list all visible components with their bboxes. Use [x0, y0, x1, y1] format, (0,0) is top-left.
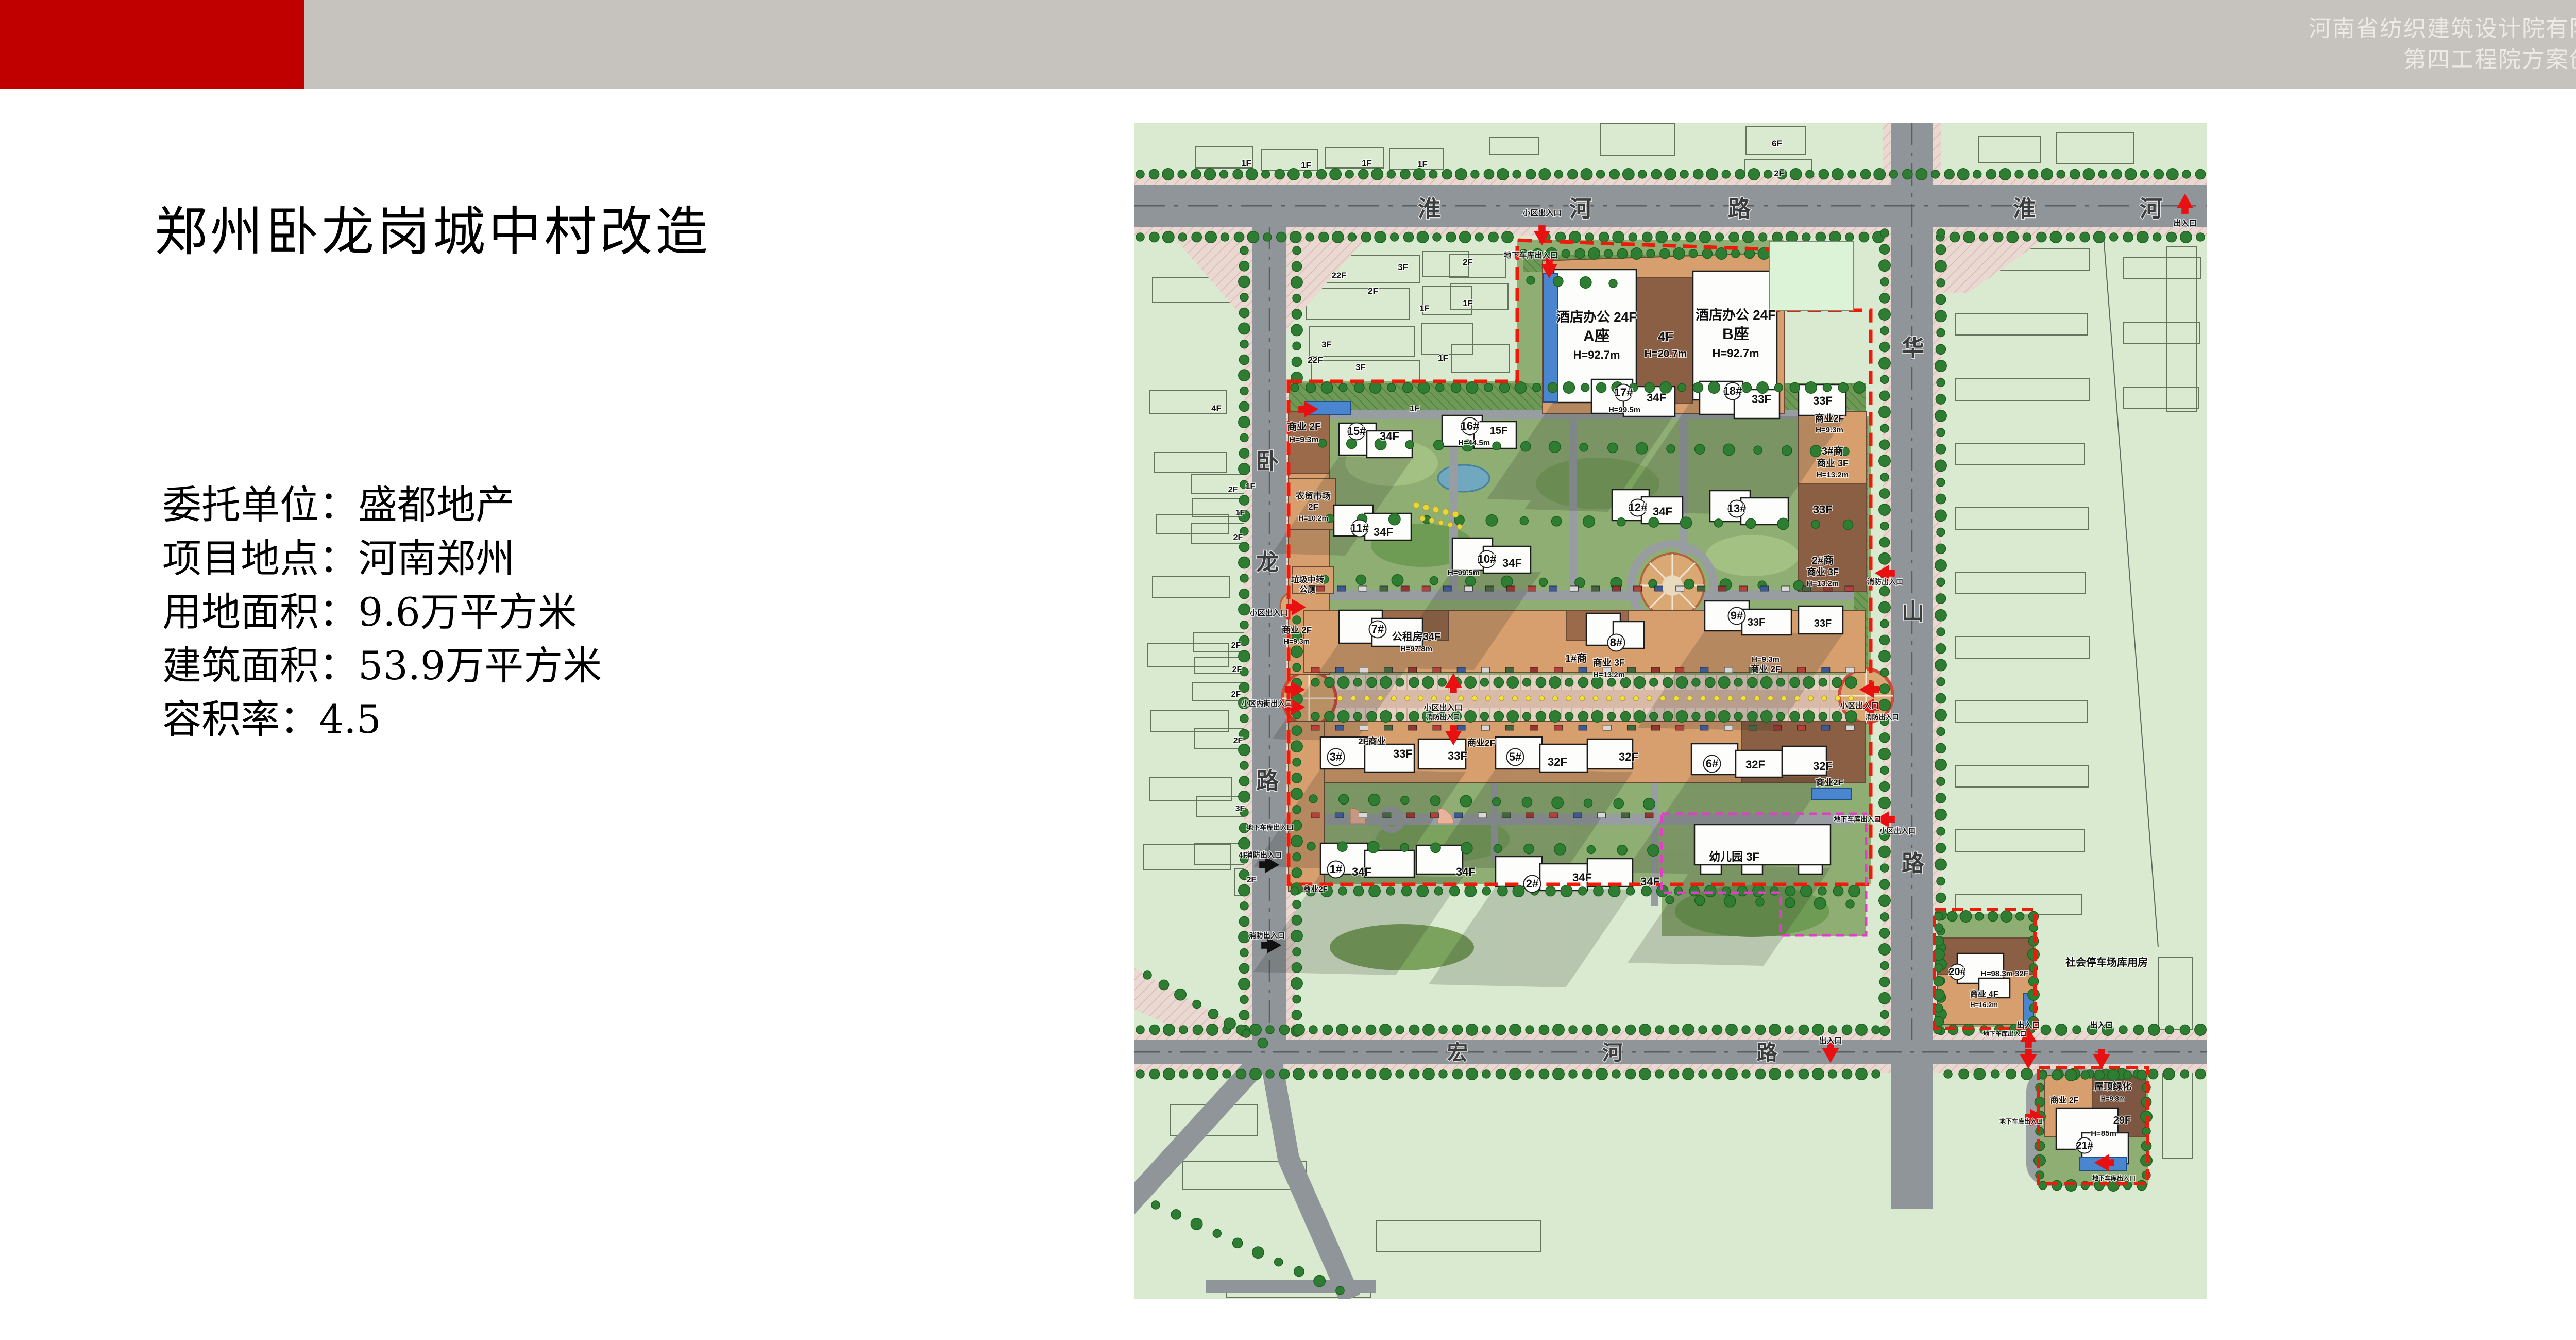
tree-icon	[1879, 601, 1890, 613]
tree-icon	[2050, 231, 2061, 243]
plan-label: 商业 3F	[1807, 566, 1839, 577]
tree-icon	[1539, 578, 1548, 587]
tree-icon	[1442, 169, 1452, 179]
tree-icon	[1293, 995, 1301, 1003]
tree-icon	[1936, 743, 1945, 753]
plan-label: 33F	[1813, 394, 1833, 407]
tree-icon	[1719, 677, 1730, 688]
header-band: 河南省纺织建筑设计院有限公司 第四工程院方案创作所	[0, 0, 2576, 89]
tree-icon	[1716, 233, 1724, 241]
tree-icon	[1772, 232, 1782, 242]
tree-icon	[1790, 169, 1802, 180]
tree-icon	[1486, 515, 1497, 526]
tree-icon	[1785, 1070, 1793, 1078]
tree-icon	[1240, 340, 1248, 348]
plan-label: 33F	[1814, 618, 1832, 629]
plan-label: 1F	[1410, 404, 1420, 413]
tree-icon	[1936, 394, 1945, 404]
tree-icon	[2167, 169, 2178, 180]
tree-icon	[1599, 232, 1609, 242]
tree-icon	[1303, 170, 1312, 178]
company-name: 河南省纺织建筑设计院有限公司	[2309, 13, 2576, 44]
tree-icon	[1578, 677, 1588, 687]
tree-icon	[2065, 1069, 2077, 1081]
tree-icon	[1581, 383, 1589, 392]
tree-icon	[1239, 604, 1250, 615]
tree-icon	[1136, 233, 1144, 241]
tree-icon	[1802, 233, 1810, 241]
plan-label: 龙	[1256, 550, 1279, 575]
tree-icon	[1239, 837, 1250, 849]
tree-icon	[1856, 1024, 1867, 1035]
car-icon	[1530, 667, 1538, 673]
plan-label: 2F	[1231, 641, 1241, 650]
tree-icon	[1207, 1024, 1218, 1035]
tree-icon	[1596, 1068, 1607, 1080]
tree-icon	[1655, 1026, 1664, 1034]
tree-icon	[1702, 248, 1712, 258]
tree-icon	[1339, 794, 1349, 804]
tree-icon	[1330, 169, 1341, 180]
tree-icon	[1266, 1070, 1274, 1078]
plan-label: 3F	[1398, 262, 1408, 272]
tree-icon	[1380, 677, 1392, 688]
tree-icon	[1465, 711, 1476, 722]
tree-icon	[1676, 711, 1687, 722]
tree-icon	[1636, 443, 1648, 454]
plan-label: H=97.8m	[1400, 645, 1432, 654]
tree-icon	[1916, 169, 1927, 180]
light-dot-icon	[1413, 502, 1419, 508]
plan-label: 路	[1902, 851, 1925, 876]
tree-icon	[1240, 949, 1248, 957]
tree-icon	[1482, 1026, 1490, 1034]
tree-icon	[1732, 249, 1740, 258]
light-dot-icon	[1553, 696, 1558, 701]
tree-icon	[1500, 382, 1510, 392]
tree-icon	[1498, 886, 1507, 896]
tree-icon	[1233, 1238, 1243, 1248]
plan-label: 34F	[1374, 526, 1393, 539]
tree-icon	[1793, 580, 1803, 590]
tree-icon	[1520, 517, 1528, 525]
tree-icon	[1460, 795, 1471, 807]
tree-icon	[1815, 898, 1826, 909]
tree-icon	[1937, 528, 1945, 537]
tree-icon	[1163, 231, 1174, 243]
tree-icon	[1832, 677, 1842, 687]
tree-icon	[1937, 229, 1945, 237]
tree-icon	[1936, 494, 1945, 504]
tree-icon	[1861, 169, 1871, 179]
plan-label: 34F	[1380, 430, 1399, 443]
plan-label: 2F	[1774, 169, 1784, 178]
tree-icon	[1293, 806, 1301, 814]
car-icon	[1782, 586, 1790, 591]
tree-icon	[1466, 576, 1476, 586]
plan-label: 1F	[1463, 298, 1473, 308]
tree-icon	[1879, 358, 1890, 369]
tree-icon	[1409, 677, 1419, 687]
tree-icon	[1345, 170, 1353, 178]
tree-icon	[1880, 913, 1889, 921]
tree-icon	[1539, 169, 1550, 180]
plan-label: 2#商	[1812, 554, 1834, 566]
tree-icon	[1879, 1026, 1889, 1035]
tree-icon	[1612, 1070, 1620, 1078]
plan-label: 15F	[1490, 425, 1507, 437]
plan-label: 8#	[1610, 636, 1622, 649]
tree-icon	[1935, 310, 1946, 322]
tree-icon	[1513, 170, 1521, 178]
tree-icon	[1935, 410, 1946, 422]
light-dot-icon	[1580, 696, 1585, 701]
tree-icon	[1536, 677, 1546, 687]
tree-icon	[1369, 382, 1381, 393]
car-icon	[1655, 586, 1663, 591]
car-icon	[1360, 667, 1368, 673]
tree-icon	[1746, 518, 1756, 528]
tree-icon	[1879, 489, 1889, 498]
tree-icon	[1960, 911, 1971, 922]
tree-icon	[1439, 1026, 1447, 1034]
tree-icon	[1417, 231, 1428, 243]
tree-icon	[1533, 383, 1541, 392]
plan-label: 15#	[1347, 425, 1366, 438]
light-dot-icon	[1512, 696, 1517, 701]
tree-icon	[1240, 761, 1248, 769]
tree-icon	[2110, 233, 2118, 241]
tree-icon	[1223, 1070, 1231, 1078]
plan-label: 商业2F	[1816, 777, 1843, 788]
car-icon	[1528, 586, 1536, 591]
tree-icon	[1507, 677, 1518, 688]
tree-icon	[1936, 344, 1945, 354]
tree-icon	[2056, 1024, 2067, 1035]
tree-icon	[1553, 1068, 1564, 1080]
car-icon	[1634, 586, 1642, 591]
plan-label: 32F	[1745, 758, 1765, 771]
tree-icon	[1638, 170, 1647, 178]
tree-icon	[1307, 842, 1315, 850]
tree-icon	[1466, 382, 1478, 393]
tree-icon	[1937, 378, 1945, 387]
tree-icon	[1338, 711, 1349, 722]
tree-icon	[1879, 846, 1890, 857]
tree-icon	[1597, 170, 1605, 178]
tree-icon	[1266, 1026, 1274, 1034]
plan-label: H=99.5m	[1608, 406, 1640, 414]
tree-icon	[1239, 1010, 1249, 1020]
light-dot-icon	[1808, 696, 1814, 701]
plan-label: 商业 2F	[2050, 1095, 2078, 1105]
tree-icon	[1354, 886, 1364, 896]
light-dot-icon	[1432, 696, 1437, 701]
tree-icon	[1959, 1069, 1969, 1079]
tree-icon	[2182, 170, 2191, 178]
plan-label: 20#	[1948, 966, 1965, 978]
plan-label: 32F	[1548, 756, 1567, 768]
tree-icon	[1501, 576, 1513, 587]
tree-icon	[1536, 711, 1546, 721]
plan-label: H=99.5m	[1448, 568, 1480, 577]
tree-icon	[1239, 401, 1249, 411]
tree-icon	[1845, 233, 1854, 241]
tree-icon	[2165, 1026, 2174, 1034]
tree-icon	[1338, 677, 1349, 688]
tree-icon	[1292, 726, 1301, 735]
car-icon	[1554, 667, 1563, 673]
car-icon	[1676, 586, 1684, 591]
plan-label: 10#	[1478, 552, 1497, 565]
car-icon	[1485, 586, 1494, 591]
tree-icon	[1336, 1286, 1344, 1295]
tree-icon	[2066, 233, 2075, 241]
tree-icon	[1790, 677, 1800, 687]
tree-icon	[1623, 169, 1634, 180]
tree-icon	[1291, 887, 1299, 895]
tree-icon	[1409, 711, 1419, 721]
tree-icon	[2073, 1026, 2081, 1034]
tree-icon	[2154, 169, 2163, 179]
plan-label: H=13.2m	[1807, 579, 1839, 588]
tree-icon	[1293, 616, 1301, 624]
tree-icon	[1475, 233, 1483, 241]
car-icon	[1579, 667, 1587, 673]
tree-icon	[1149, 169, 1159, 179]
tree-icon	[1936, 294, 1945, 304]
site-plan-svg: 淮河路淮河卧龙路华山路宏河路酒店办公 24FA座H=92.7m4FH=20.7m…	[1134, 123, 2207, 1299]
car-icon	[1502, 813, 1510, 818]
tree-icon	[1755, 1069, 1765, 1079]
tree-icon	[1931, 170, 1940, 178]
tree-icon	[1246, 169, 1257, 180]
tree-icon	[1991, 1070, 1999, 1078]
tree-icon	[1879, 977, 1889, 987]
tree-icon	[2094, 1070, 2104, 1080]
light-dot-icon	[1337, 696, 1343, 701]
light-dot-icon	[1727, 696, 1733, 701]
tree-icon	[1239, 557, 1250, 568]
tree-icon	[1367, 711, 1377, 721]
info-line-far: 容积率：4.5	[162, 693, 602, 746]
tree-icon	[1805, 382, 1817, 393]
tree-icon	[1524, 844, 1534, 854]
tree-icon	[1588, 248, 1600, 259]
plan-label: 消防出入口	[1426, 713, 1460, 721]
tree-icon	[1353, 712, 1362, 721]
light-dot-icon	[1364, 696, 1369, 701]
plan-label: 商业 2F	[1287, 421, 1320, 432]
tree-icon	[1306, 233, 1314, 241]
tree-icon	[1963, 231, 1975, 243]
tree-icon	[1291, 324, 1302, 336]
tree-icon	[1935, 709, 1946, 721]
tree-icon	[1175, 989, 1186, 1000]
tree-icon	[1239, 463, 1250, 475]
tree-icon	[1178, 170, 1186, 178]
tree-icon	[1879, 440, 1889, 449]
tree-icon	[1880, 668, 1889, 677]
tree-icon	[1242, 1029, 1250, 1037]
tree-icon	[2195, 1024, 2206, 1035]
car-icon	[1359, 586, 1367, 591]
car-icon	[1549, 586, 1557, 591]
tree-icon	[1239, 542, 1249, 552]
tree-icon	[1650, 712, 1658, 721]
tree-icon	[1596, 382, 1606, 392]
tree-icon	[1319, 232, 1329, 242]
car-icon	[1409, 667, 1417, 673]
car-icon	[1335, 813, 1343, 818]
plan-label: 农贸市场	[1295, 491, 1331, 501]
tree-icon	[1801, 885, 1812, 897]
tree-icon	[1669, 1069, 1679, 1079]
tree-icon	[1484, 169, 1494, 179]
tree-icon	[1371, 169, 1383, 180]
tree-icon	[1389, 513, 1400, 525]
tree-icon	[1683, 1068, 1694, 1080]
tree-icon	[1387, 170, 1395, 178]
tree-icon	[1755, 1025, 1765, 1034]
tree-icon	[1935, 460, 1946, 471]
car-icon	[1454, 813, 1463, 818]
plan-label: 2F	[1247, 876, 1257, 884]
car-icon	[1359, 813, 1367, 818]
tree-icon	[1819, 169, 1828, 179]
tree-icon	[1769, 1024, 1781, 1035]
tree-icon	[1239, 963, 1249, 973]
tree-icon	[1391, 233, 1399, 241]
tree-icon	[1400, 169, 1410, 179]
tree-icon	[1723, 444, 1735, 455]
tree-icon	[1204, 169, 1215, 180]
tree-icon	[2123, 232, 2133, 242]
light-dot-icon	[1526, 696, 1531, 701]
tree-icon	[1678, 383, 1686, 392]
tree-icon	[1539, 1025, 1549, 1034]
tree-icon	[1726, 1024, 1737, 1035]
car-icon	[1337, 586, 1346, 591]
tree-icon	[1434, 440, 1444, 450]
tree-icon	[2180, 231, 2192, 243]
plan-label: 商业2F	[1815, 413, 1844, 424]
car-icon	[1409, 725, 1417, 730]
tree-icon	[1699, 231, 1710, 243]
plan-label: 路	[1757, 1042, 1778, 1064]
tree-icon	[1288, 169, 1299, 180]
car-icon	[1478, 813, 1486, 818]
plan-label: H=98.3m 32F	[1981, 969, 2028, 978]
car-icon	[1335, 725, 1344, 730]
tree-icon	[1239, 495, 1249, 505]
car-icon	[1845, 586, 1853, 591]
tree-icon	[1136, 1070, 1144, 1078]
plan-label: 屋顶绿化	[2094, 1081, 2131, 1092]
tree-icon	[1764, 170, 1772, 178]
tree-icon	[1396, 1026, 1404, 1034]
tree-icon	[1596, 1024, 1607, 1035]
tree-icon	[1973, 170, 1981, 178]
tree-icon	[1460, 231, 1471, 243]
tree-icon	[1240, 387, 1248, 395]
tree-icon	[1436, 383, 1444, 392]
tree-icon	[1828, 1026, 1837, 1034]
car-icon	[1724, 725, 1733, 730]
tree-icon	[1634, 711, 1645, 722]
tree-icon	[1879, 538, 1889, 547]
plan-label: 13#	[1727, 502, 1747, 515]
plan-label: 商业 3F	[1593, 657, 1625, 668]
car-icon	[1311, 725, 1319, 730]
car-icon	[1724, 667, 1733, 673]
tree-icon	[1258, 1038, 1267, 1048]
tree-icon	[1291, 835, 1302, 847]
tree-icon	[1712, 1069, 1722, 1079]
project-info: 委托单位：盛都地产 项目地点：河南郑州 用地面积：9.6万平方米 建筑面积：53…	[162, 478, 602, 746]
plan-label: 2F	[1368, 286, 1378, 296]
tree-icon	[1494, 711, 1503, 721]
tree-icon	[1854, 382, 1865, 393]
tree-icon	[1292, 1010, 1301, 1020]
plan-label: 河	[2140, 196, 2162, 222]
tree-icon	[1663, 711, 1673, 721]
light-dot-icon	[1674, 696, 1679, 701]
tree-icon	[1903, 169, 1912, 179]
tree-icon	[1380, 711, 1392, 722]
tree-icon	[2108, 1069, 2119, 1081]
plan-label: H=92.7m	[1573, 348, 1620, 361]
car-icon	[1550, 813, 1558, 818]
tree-icon	[1403, 232, 1413, 242]
tree-icon	[1493, 442, 1501, 450]
tree-icon	[1833, 886, 1843, 896]
tree-icon	[2133, 1025, 2143, 1034]
car-icon	[1627, 667, 1635, 673]
tree-icon	[1776, 678, 1785, 686]
tree-icon	[1812, 1024, 1824, 1035]
tree-icon	[1240, 995, 1248, 1003]
plan-label: 2F	[1463, 257, 1473, 267]
tree-icon	[1178, 233, 1187, 241]
tree-icon	[1279, 1025, 1289, 1034]
tree-icon	[1405, 441, 1414, 449]
tree-icon	[1663, 677, 1673, 687]
tree-icon	[1179, 1070, 1188, 1078]
tree-icon	[1291, 383, 1299, 392]
plan-label: 3F	[1321, 340, 1332, 349]
tree-icon	[1193, 1025, 1202, 1034]
car-icon	[1481, 667, 1489, 673]
tree-icon	[1403, 382, 1413, 392]
tree-icon	[1356, 575, 1366, 584]
tree-icon	[1828, 1070, 1837, 1078]
tree-icon	[1936, 245, 1945, 255]
tree-icon	[1585, 233, 1594, 241]
tree-icon	[1291, 788, 1302, 799]
plan-label: 6#	[1706, 757, 1718, 770]
tree-icon	[1692, 678, 1700, 686]
tree-icon	[1353, 678, 1362, 686]
plan-label: 12#	[1629, 501, 1648, 514]
reserved-lot	[1770, 241, 1853, 310]
tree-icon	[1604, 249, 1613, 258]
tree-icon	[1660, 248, 1670, 258]
tree-icon	[1999, 169, 2011, 180]
tree-icon	[1818, 887, 1826, 895]
tree-icon	[1936, 793, 1945, 803]
tree-icon	[1842, 1025, 1852, 1034]
